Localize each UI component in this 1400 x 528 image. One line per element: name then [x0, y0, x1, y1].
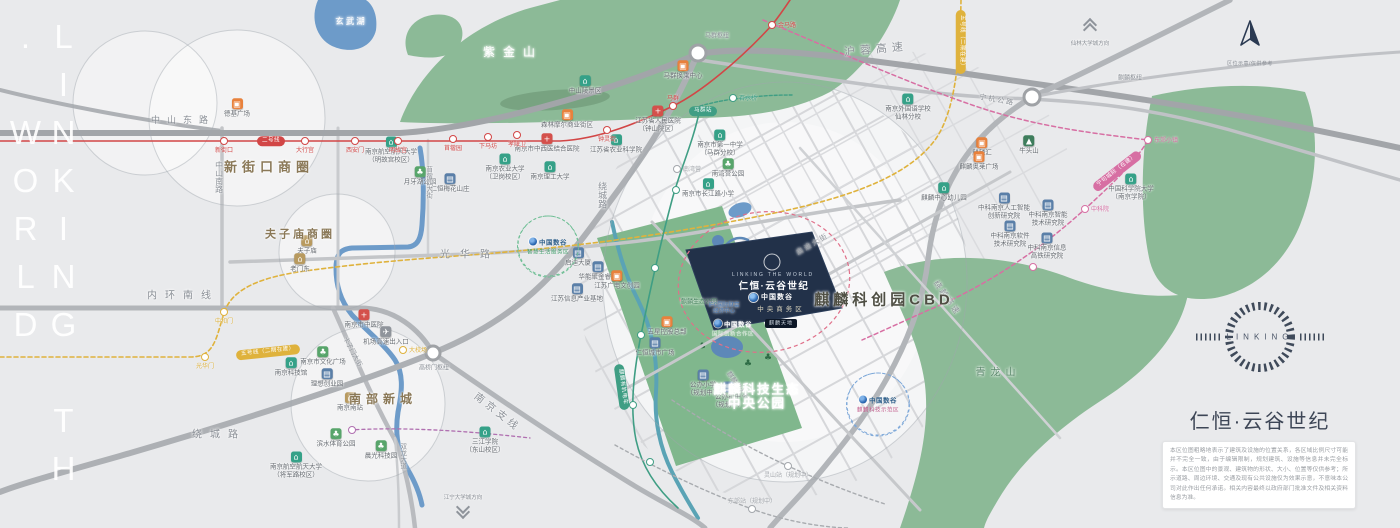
park-icon: ♣ — [723, 158, 734, 169]
metro-station — [629, 401, 637, 409]
poi-label: 公办初中 （规划中） — [712, 394, 745, 409]
project-marker: 中国数谷麒麟科技示范区 — [857, 395, 899, 414]
mall-icon: ▣ — [662, 316, 673, 327]
area-label: 南部新城 — [349, 393, 417, 407]
area-label: 麒麟生态公园 — [681, 300, 717, 307]
poi-label: 启迪大厦 — [565, 259, 591, 267]
gate-icon: ⌂ — [295, 253, 306, 264]
area-label: IFC国际财富 经济中心 — [709, 303, 740, 316]
park-icon: ♣ — [376, 440, 387, 451]
poi-gate: ⌂老门东 — [290, 253, 310, 273]
building-icon: ▤ — [593, 261, 604, 272]
poi-label: 森林摩尔商业街区 — [541, 121, 593, 129]
poi-building: ▤理想创业园 — [311, 368, 344, 388]
poi-label: 机场高速出入口 — [363, 338, 409, 346]
metro-station: 下马坊 — [484, 133, 492, 141]
poi-mountain: ▲牛头山 — [1019, 135, 1039, 155]
road-label: 宁杭公路 — [979, 94, 1016, 108]
school-icon: ⌂ — [480, 427, 491, 438]
school-icon: ⌂ — [903, 94, 914, 105]
area-label: 夫子庙商圈 — [265, 229, 335, 242]
poi-label: 麒麟奥莱广场 — [960, 163, 999, 171]
road-label: 麒麟枢纽 — [1118, 76, 1142, 83]
road-label: 高桥门枢纽 — [419, 366, 449, 373]
building-icon: ▤ — [572, 283, 583, 294]
chevron-down-icon: 江宁大学城方向 — [456, 503, 470, 517]
compass: 区位示意/仅供参考 — [1222, 18, 1278, 67]
mall-icon: ▣ — [232, 98, 243, 109]
poi-hospital: +江苏省人民医院 （钟山院区） — [635, 106, 681, 133]
poi-label: 五星控股总部 — [648, 328, 687, 336]
poi-school: ⌂南京市长江路小学 — [682, 178, 734, 198]
brand-logo-text: LINKING — [1226, 333, 1293, 342]
poi-label: 南京市中医院 — [345, 321, 384, 329]
metro-station — [1029, 263, 1037, 271]
brand-sphere-icon — [859, 396, 867, 404]
metro-station: 光华门 — [201, 353, 209, 361]
park-icon: ♣ — [415, 166, 426, 177]
metro-station: 西安门 — [351, 137, 359, 145]
poi-label: 南京南站 — [337, 404, 363, 412]
building-icon: ▤ — [1043, 200, 1054, 211]
mall-icon: ▣ — [612, 270, 623, 281]
road-label: 启迪大街 — [795, 233, 830, 258]
building-icon: ▤ — [322, 368, 333, 379]
poi-building: ▤启迪大厦 — [565, 247, 591, 267]
poi-label: 中国科学院大学 （南京学院） — [1108, 186, 1154, 201]
poi-label: 中科南京智能 技术研究院 — [1029, 212, 1068, 227]
poi-gate: ⌂南京南站 — [337, 392, 363, 412]
building-icon: ▤ — [445, 173, 456, 184]
metro-line-capsule: 马群站 — [689, 106, 717, 116]
school-icon: ⌂ — [1126, 174, 1137, 185]
metro-station: 中科院 — [1081, 205, 1089, 213]
metro-station: 大校场 — [399, 346, 407, 354]
poi-hospital: +南京市中医院 — [345, 309, 384, 329]
poi-label: 公办小学 （规划中） — [687, 382, 720, 397]
building-icon: ▤ — [650, 337, 661, 348]
brand-logo: LINKING — [1150, 285, 1370, 395]
road-label: 双龙大道 — [398, 443, 405, 469]
compass-note: 区位示意/仅供参考 — [1222, 60, 1278, 67]
metro-station: 孝陵卫 — [513, 131, 521, 139]
school-icon: ⌂ — [286, 357, 297, 368]
poi-school: ⌂中山陵景区 — [569, 75, 602, 95]
metro-station: 灵山站（规划中） — [784, 462, 792, 470]
poi-building: ▤公办初中 （规划中） — [712, 382, 745, 409]
metro-station: 马群 — [669, 102, 677, 110]
poi-school: ⌂南京理工大学 — [531, 161, 570, 181]
poi-building: ▤江苏信息产业基地 — [551, 283, 603, 303]
poi-label: 南京市文化广场 — [300, 358, 346, 366]
area-label: 麒麟科创园CBD — [814, 291, 954, 308]
metro-line-capsule: 宁句城际（在建） — [1091, 149, 1143, 192]
road-label: 沪蓉高速 — [844, 41, 909, 59]
poi-school: ⌂江苏省农业科学院 — [590, 134, 642, 154]
poi-label: 南京科技馆 — [275, 369, 308, 377]
location-map-poster: ♣ ♣ ♣ — [0, 0, 1400, 528]
metro-station — [646, 458, 654, 466]
poi-label: 江苏信息产业基地 — [551, 295, 603, 303]
poi-mall: ▣五星控股总部 — [648, 316, 687, 336]
metro-station — [637, 331, 645, 339]
poi-school: ⌂南京航空航天大学 （明故宫校区） — [365, 137, 417, 164]
poi-label: 麒麟汇 — [972, 149, 992, 157]
poi-school: ⌂南京科技馆 — [275, 357, 308, 377]
poi-label: 德基广场 — [224, 110, 250, 118]
poi-label: 晨光科技园 — [365, 452, 398, 460]
poi-building: ▤中科南京软件 技术研究院 — [991, 221, 1030, 248]
poi-building: ▤中科南京智能 技术研究院 — [1029, 200, 1068, 227]
building-icon: ▤ — [573, 247, 584, 258]
metro-station: 苜蓿园 — [449, 135, 457, 143]
poi-mall: ▣麒麟汇 — [972, 137, 992, 157]
metro-station: 东郊站（规划中） — [748, 505, 756, 513]
poi-label: 老门东 — [290, 265, 310, 273]
school-icon: ⌂ — [703, 178, 714, 189]
project-title: 仁恒·云谷世纪 — [1150, 405, 1370, 434]
metro-station — [348, 426, 356, 434]
poi-label: 中科南京软件 技术研究院 — [991, 233, 1030, 248]
road-label: 中山南路 — [214, 161, 223, 193]
area-label: 青龙山 — [976, 367, 1021, 379]
building-icon: ▤ — [698, 370, 709, 381]
metro-station: 中和门 — [220, 308, 228, 316]
poi-label: 牛头山 — [1019, 147, 1039, 155]
poi-school: ⌂三江学院 （东山校区） — [466, 427, 505, 454]
poi-mall: ▣江苏广电文创园 — [594, 270, 640, 290]
poi-label: 南京市中西医结合医院 — [515, 145, 580, 153]
metro-station — [651, 264, 659, 272]
poi-park: ♣月牙湖公园 — [404, 166, 437, 186]
metro-station: 钟灵街 — [603, 126, 611, 134]
poi-label: 南京市长江路小学 — [682, 190, 734, 198]
metro-line-capsule: 五号线（二期在建） — [956, 10, 966, 74]
poi-hospital: +南京市中西医结合医院 — [515, 133, 580, 153]
road-label: 苜蓿园大街 — [424, 166, 431, 199]
poi-mall: ▣德基广场 — [224, 98, 250, 118]
poi-label: 南京农业大学 （卫岗校区） — [486, 166, 525, 181]
poi-mall: ▣马群换乘中心 — [664, 60, 703, 80]
school-icon: ⌂ — [715, 130, 726, 141]
mall-icon: ▣ — [562, 109, 573, 120]
poi-label: 南京航空航天大学 （将军路校区） — [270, 464, 322, 479]
metro-line-capsule: 五号线（二期在建） — [236, 344, 301, 360]
poi-park: ♣晨光科技园 — [365, 440, 398, 460]
poi-building: ▤中科南京信息 高铁研究院 — [1028, 233, 1067, 260]
metro-line-capsule: 二号线 — [257, 136, 285, 146]
road-label: 绕城路 — [192, 429, 246, 441]
poi-label: 南京航空航天大学 （明故宫校区） — [365, 149, 417, 164]
mountain-icon: ▲ — [1024, 135, 1035, 146]
project-marker: 中国数谷国际创新合作区 — [712, 319, 754, 338]
metro-station: 南湾营 — [673, 165, 681, 173]
area-label: 麒麟科技生态 中央公园 — [713, 383, 800, 412]
metro-station: 大行宫 — [301, 137, 309, 145]
poi-label: 仁恒梅花山庄 — [431, 185, 470, 193]
poi-label: 马群换乘中心 — [664, 72, 703, 80]
area-label: 玄武湖 — [335, 17, 367, 27]
road-label: 麒麟门大街 — [725, 371, 750, 402]
poi-mall: ▣森林摩尔商业街区 — [541, 109, 593, 129]
poi-mall: ▣麒麟奥莱广场 — [960, 151, 999, 171]
road-label: 光华路 — [440, 249, 500, 261]
school-icon: ⌂ — [545, 161, 556, 172]
poi-label: 滨水体育公园 — [317, 440, 356, 448]
poi-school: ⌂中国科学院大学 （南京学院） — [1108, 174, 1154, 201]
poi-label: 月牙湖公园 — [404, 178, 437, 186]
poi-park: ♣南京市文化广场 — [300, 346, 346, 366]
poi-building: ▤华能聚金睿谷 — [579, 261, 618, 281]
school-icon: ⌂ — [291, 452, 302, 463]
road-label: 中山东路 — [151, 115, 215, 125]
park-icon: ♣ — [331, 428, 342, 439]
gate-icon: ⌂ — [302, 235, 313, 246]
metro-station: 新街口 — [220, 137, 228, 145]
metro-line-capsule: 麒麟有轨电车 — [614, 364, 630, 411]
poi-label: 江苏省人民医院 （钟山院区） — [635, 118, 681, 133]
poi-label: 仁恒城市广场 — [636, 349, 675, 357]
poi-label: 中山陵景区 — [569, 87, 602, 95]
building-icon: ▤ — [1042, 233, 1053, 244]
brand-sphere-icon — [529, 238, 537, 246]
hospital-icon: + — [542, 133, 553, 144]
road-label: 南京支线 — [471, 391, 522, 435]
road-label: 卡子门大街 — [341, 336, 363, 368]
poi-building: ▤中科南京人工智能 创新研究院 — [978, 193, 1030, 220]
brand-sphere-icon — [714, 320, 722, 328]
poi-label: 华能聚金睿谷 — [579, 273, 618, 281]
area-label: 紫金山 — [483, 46, 543, 60]
mall-icon: ▣ — [678, 60, 689, 71]
road-label: 马群枢纽 — [705, 34, 729, 41]
disclaimer-box: 本区位图粗略地表示了建筑及设施的位置关系，各区域比例尺寸可能并不完全一致，由于编… — [1162, 441, 1356, 509]
hospital-icon: + — [359, 309, 370, 320]
school-icon: ⌂ — [611, 134, 622, 145]
poi-label: 理想创业园 — [311, 380, 344, 388]
school-icon: ⌂ — [386, 137, 397, 148]
metro-station: 东郊小镇 — [1144, 136, 1152, 144]
hospital-icon: + — [653, 106, 664, 117]
road-label: 内环南线 — [147, 290, 219, 302]
road-label: 绕越高速 — [932, 279, 962, 317]
school-icon: ⌂ — [500, 154, 511, 165]
brand-panel: LINKING 仁恒·云谷世纪 区 位 图 — [1150, 285, 1370, 457]
poi-park: ♣南湾营公园 — [712, 158, 745, 178]
poi-label: 南湾营公园 — [712, 170, 745, 178]
poi-label: 江苏广电文创园 — [594, 282, 640, 290]
poi-label: 南京外国语学校 仙林分校 — [885, 106, 931, 121]
poi-gate: ⌂夫子庙 — [297, 235, 317, 255]
project-marker: 中国数谷智慧生活服务区 — [527, 237, 569, 256]
poi-label: 麒麟中心幼儿园 — [921, 194, 967, 202]
poi-label: 南京理工大学 — [531, 173, 570, 181]
building-icon: ▤ — [723, 382, 734, 393]
north-arrow-icon — [1232, 18, 1268, 52]
building-icon: ▤ — [999, 193, 1010, 204]
poi-building: ▤仁恒城市广场 — [636, 337, 675, 357]
poi-label: 三江学院 （东山校区） — [466, 439, 505, 454]
poi-airport: ✈机场高速出入口 — [363, 326, 409, 346]
poi-building: ▤仁恒梅花山庄 — [431, 173, 470, 193]
poi-school: ⌂南京农业大学 （卫岗校区） — [486, 154, 525, 181]
airport-icon: ✈ — [381, 326, 392, 337]
poi-school: ⌂南京外国语学校 仙林分校 — [885, 94, 931, 121]
poi-label: 中科南京信息 高铁研究院 — [1028, 245, 1067, 260]
mall-icon: ▣ — [974, 151, 985, 162]
mall-icon: ▣ — [977, 137, 988, 148]
chevron-up-icon: 仙林大学城方向 — [1083, 19, 1097, 33]
poi-school: ⌂麒麟中心幼儿园 — [921, 182, 967, 202]
poi-label: 江苏省农业科学院 — [590, 146, 642, 154]
poi-label: 中科南京人工智能 创新研究院 — [978, 205, 1030, 220]
poi-label: 夫子庙 — [297, 247, 317, 255]
school-icon: ⌂ — [580, 75, 591, 86]
metro-station: 百水桥 — [729, 94, 737, 102]
school-icon: ⌂ — [939, 182, 950, 193]
metro-station: 明故宫 — [394, 137, 402, 145]
park-icon: ♣ — [318, 346, 329, 357]
area-label: 新街口商圈 — [224, 161, 314, 176]
poi-school: ⌂南京航空航天大学 （将军路校区） — [270, 452, 322, 479]
poi-label: 南京市第一中学 （马群分校） — [697, 142, 743, 157]
poi-park: ♣滨水体育公园 — [317, 428, 356, 448]
poi-school: ⌂南京市第一中学 （马群分校） — [697, 130, 743, 157]
building-icon: ▤ — [1005, 221, 1016, 232]
metro-station: 金马路 — [768, 21, 776, 29]
metro-station — [672, 186, 680, 194]
gate-icon: ⌂ — [345, 392, 356, 403]
road-label: 绕城路 — [597, 182, 607, 209]
poi-building: ▤公办小学 （规划中） — [687, 370, 720, 397]
